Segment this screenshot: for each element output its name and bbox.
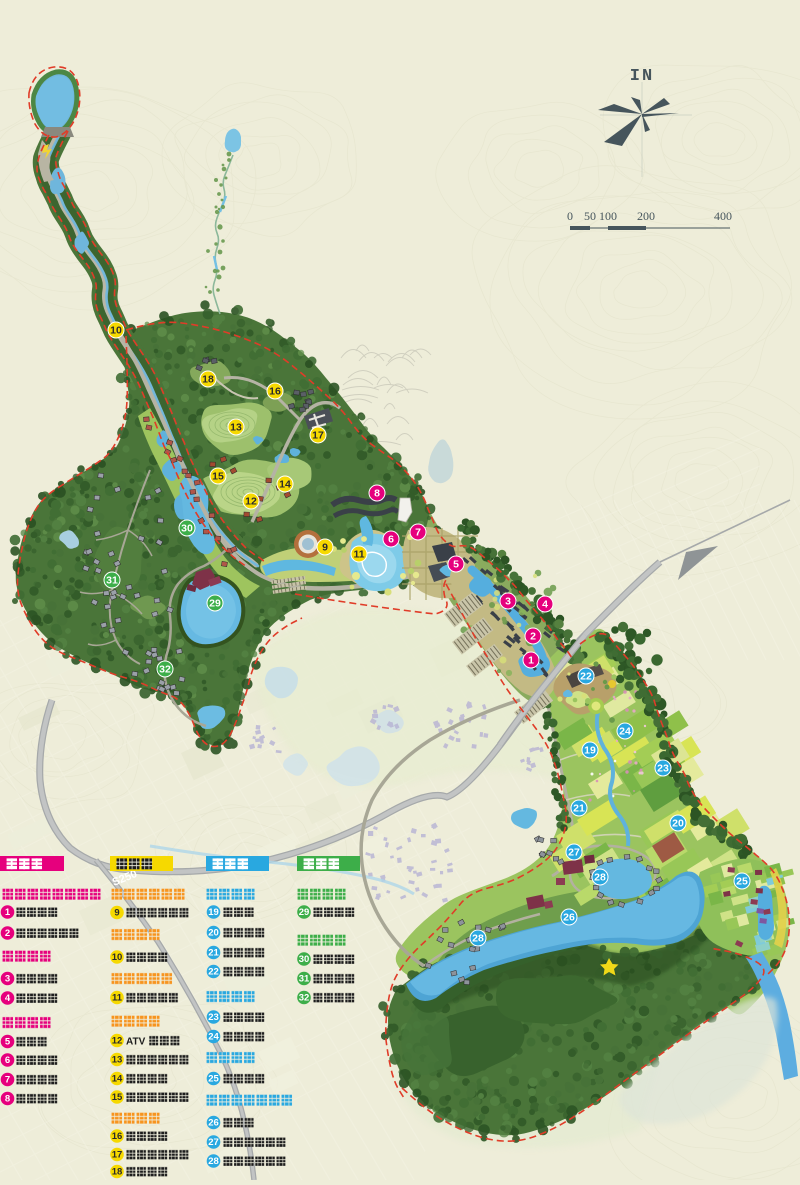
svg-text:27: 27 — [568, 847, 580, 859]
svg-text:50: 50 — [584, 209, 596, 223]
svg-text:18: 18 — [112, 1167, 123, 1178]
svg-text:ATV: ATV — [126, 1036, 146, 1047]
svg-text:14: 14 — [112, 1074, 123, 1085]
svg-text:31: 31 — [299, 974, 310, 985]
svg-text:24: 24 — [208, 1032, 219, 1043]
svg-text:11: 11 — [112, 993, 123, 1004]
svg-text:5: 5 — [453, 559, 459, 571]
svg-text:5: 5 — [5, 1037, 11, 1048]
svg-text:21: 21 — [573, 803, 585, 815]
svg-text:25: 25 — [208, 1074, 219, 1085]
svg-text:28: 28 — [472, 933, 484, 945]
svg-text:26: 26 — [563, 912, 575, 924]
svg-text:31: 31 — [106, 575, 118, 587]
svg-text:20: 20 — [672, 818, 684, 830]
svg-text:28: 28 — [594, 872, 606, 884]
svg-text:19: 19 — [584, 745, 596, 757]
svg-text:1: 1 — [528, 655, 534, 667]
svg-text:28: 28 — [208, 1156, 219, 1167]
svg-text:25: 25 — [736, 876, 748, 888]
svg-text:IN: IN — [630, 67, 654, 86]
svg-text:20: 20 — [208, 928, 219, 939]
svg-text:15: 15 — [112, 1092, 123, 1103]
svg-text:4: 4 — [5, 993, 11, 1004]
svg-text:23: 23 — [657, 763, 669, 775]
svg-text:12: 12 — [245, 496, 257, 508]
svg-text:8: 8 — [374, 488, 380, 500]
svg-text:14: 14 — [279, 479, 291, 491]
svg-text:2: 2 — [5, 928, 10, 939]
svg-text:18: 18 — [202, 374, 214, 386]
svg-text:15: 15 — [212, 471, 224, 483]
svg-text:17: 17 — [112, 1150, 123, 1161]
svg-text:32: 32 — [159, 664, 171, 676]
svg-text:8: 8 — [5, 1094, 10, 1105]
svg-text:24: 24 — [619, 726, 631, 738]
svg-text:21: 21 — [208, 948, 219, 959]
svg-text:6: 6 — [388, 534, 394, 546]
svg-text:17: 17 — [312, 430, 324, 442]
svg-text:9: 9 — [114, 908, 119, 919]
svg-text:16: 16 — [112, 1131, 123, 1142]
svg-text:3: 3 — [505, 596, 511, 608]
svg-text:13: 13 — [230, 422, 242, 434]
svg-text:29: 29 — [299, 907, 310, 918]
svg-text:12: 12 — [112, 1036, 123, 1047]
svg-text:30: 30 — [181, 523, 193, 535]
svg-text:22: 22 — [580, 671, 592, 683]
svg-text:29: 29 — [209, 598, 221, 610]
svg-text:3: 3 — [5, 974, 10, 985]
svg-text:0: 0 — [567, 209, 573, 223]
svg-text:7: 7 — [5, 1075, 10, 1086]
svg-text:11: 11 — [353, 549, 364, 561]
svg-text:22: 22 — [208, 967, 219, 978]
svg-text:10: 10 — [112, 952, 123, 963]
svg-text:27: 27 — [208, 1137, 219, 1148]
svg-text:26: 26 — [208, 1118, 219, 1129]
svg-text:6: 6 — [5, 1055, 10, 1066]
svg-text:19: 19 — [208, 907, 219, 918]
svg-text:200: 200 — [637, 209, 655, 223]
svg-text:4: 4 — [542, 599, 548, 611]
svg-text:2: 2 — [530, 631, 536, 643]
svg-text:9: 9 — [322, 542, 328, 554]
svg-text:10: 10 — [110, 325, 122, 337]
svg-text:7: 7 — [415, 527, 421, 539]
svg-text:23: 23 — [208, 1012, 219, 1023]
svg-text:1: 1 — [5, 907, 11, 918]
svg-text:32: 32 — [299, 993, 310, 1004]
svg-text:30: 30 — [299, 954, 310, 965]
svg-text:100: 100 — [599, 209, 617, 223]
svg-text:13: 13 — [112, 1055, 123, 1066]
svg-text:16: 16 — [269, 386, 281, 398]
svg-text:400: 400 — [714, 209, 732, 223]
